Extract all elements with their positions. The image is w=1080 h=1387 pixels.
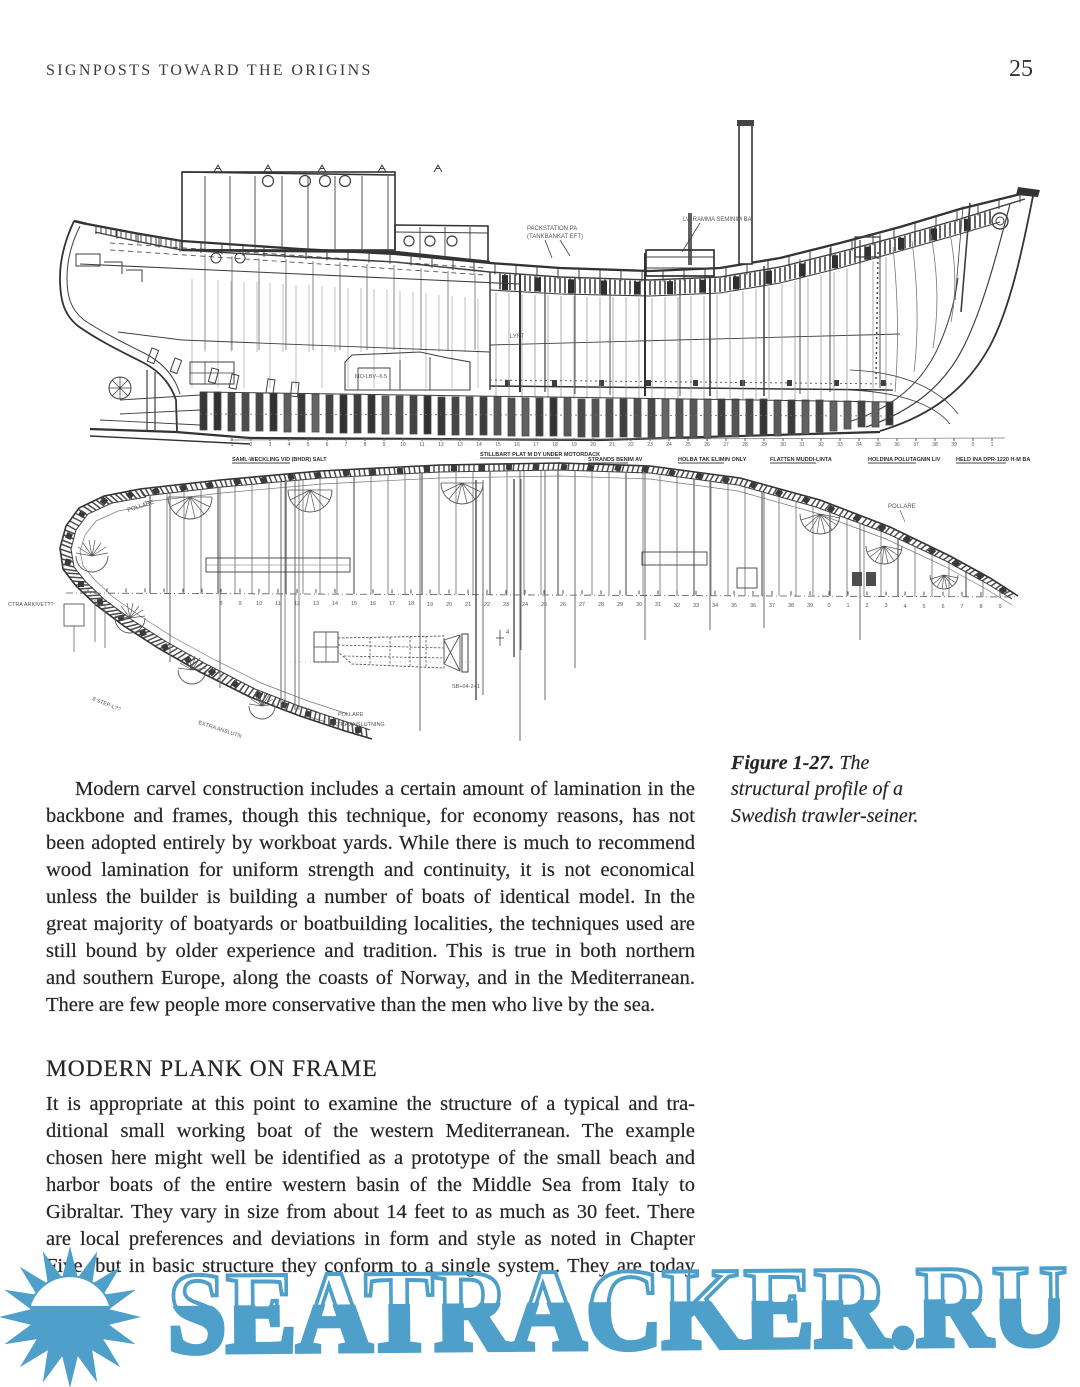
svg-text:SEATRACKER.RU: SEATRACKER.RU xyxy=(167,1242,1068,1378)
